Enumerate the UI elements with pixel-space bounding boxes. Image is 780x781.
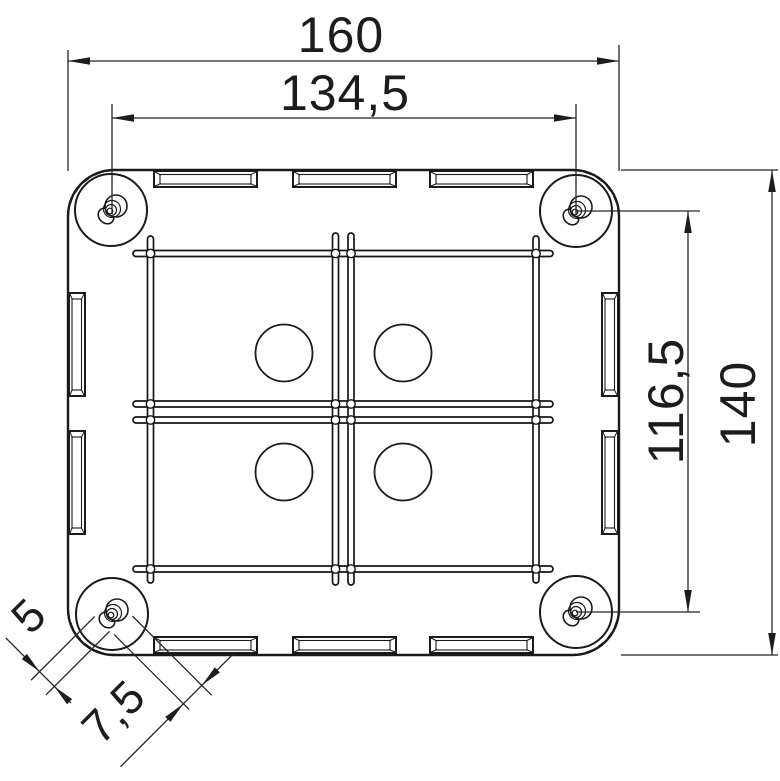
slot-left-1 [69,293,85,396]
internal-rails [133,233,553,585]
slot-left-2 [69,431,85,534]
dim-label-overall-width: 160 [298,7,384,63]
dim-label-screw-spacing-vertical: 116,5 [638,338,694,464]
slot-top-1 [154,171,257,187]
corner-bosses [75,174,612,650]
slot-right-1 [602,293,618,396]
dim-label-screw-head-diameter: 7,5 [71,670,155,754]
rail-vertical-right [533,236,539,583]
slot-top-3 [430,171,533,187]
membrane-bottom-left [256,444,313,501]
dim-label-screw-spacing-horizontal: 134,5 [280,65,410,121]
rail-horizontal-mid-1 [133,401,553,407]
box-body [68,170,619,655]
rail-horizontal-bottom [133,566,553,572]
rail-crossings [146,249,540,573]
membrane-top-right [375,325,432,382]
slot-bottom-2 [293,637,396,653]
rail-horizontal-mid-2 [133,417,553,423]
dim-label-overall-height: 140 [710,361,766,447]
membrane-knockouts [256,325,432,501]
slot-bottom-1 [154,637,257,653]
dim-label-screw-thread-diameter: 5 [1,588,57,644]
membrane-bottom-right [375,444,432,501]
rail-vertical-left [148,236,154,583]
technical-drawing-page: 160 134,5 140 116,5 5 [0,0,780,781]
rail-horizontal-top [133,251,553,257]
slot-bottom-3 [430,637,533,653]
slot-right-2 [602,431,618,534]
junction-box-drawing: 160 134,5 140 116,5 5 [0,0,780,781]
rail-vertical-mid-2 [348,233,354,585]
dimension-screw-spacing-vertical: 116,5 [576,211,700,612]
rail-vertical-mid-1 [333,233,339,585]
slot-top-2 [293,171,396,187]
membrane-top-left [256,325,313,382]
dimension-screw-spacing-horizontal: 134,5 [112,65,576,214]
